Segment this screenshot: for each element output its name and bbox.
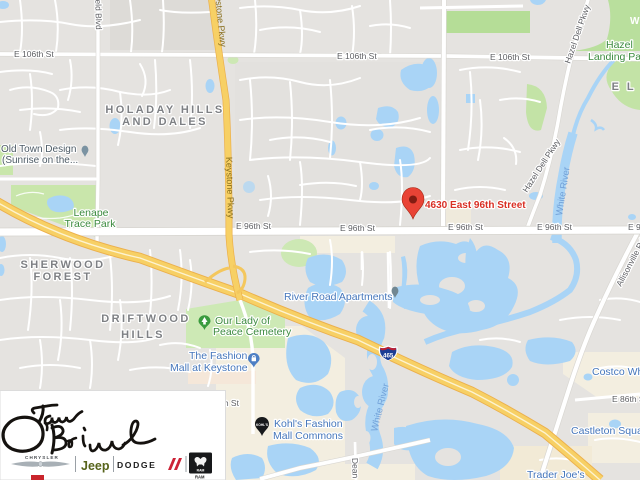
svg-text:(Sunrise on the...: (Sunrise on the... xyxy=(2,155,78,166)
svg-text:Landing Park: Landing Park xyxy=(588,51,640,63)
svg-text:AND DALES: AND DALES xyxy=(122,116,208,128)
svg-text:Costco Wholesale: Costco Wholesale xyxy=(592,366,640,378)
svg-text:465: 465 xyxy=(383,353,394,360)
svg-text:Old Town Design: Old Town Design xyxy=(1,144,76,155)
svg-text:SHERWOOD: SHERWOOD xyxy=(20,259,105,271)
svg-text:Jeep: Jeep xyxy=(81,459,110,473)
svg-text:HOLADAY HILLS: HOLADAY HILLS xyxy=(105,104,224,116)
svg-text:Hazel: Hazel xyxy=(606,39,633,51)
svg-text:E 106th St: E 106th St xyxy=(490,52,530,62)
svg-text:4630 East 96th Street: 4630 East 96th Street xyxy=(425,200,526,211)
svg-text:River Road Apartments: River Road Apartments xyxy=(284,291,393,303)
svg-text:Kohl's Fashion: Kohl's Fashion xyxy=(274,418,343,430)
svg-text:E 106th St: E 106th St xyxy=(14,49,54,59)
svg-text:E 96th St: E 96th St xyxy=(236,221,272,231)
svg-text:KOHL'S: KOHL'S xyxy=(256,423,268,427)
svg-text:E 86th St: E 86th St xyxy=(612,394,640,404)
svg-text:Trace Park: Trace Park xyxy=(65,218,117,230)
svg-text:Mall Commons: Mall Commons xyxy=(273,430,343,442)
svg-text:Trader Joe's: Trader Joe's xyxy=(527,469,585,480)
svg-text:Dean R: Dean R xyxy=(350,458,361,480)
svg-text:RAM: RAM xyxy=(195,475,205,480)
svg-text:E 106th St: E 106th St xyxy=(337,51,377,61)
svg-text:E L L: E L L xyxy=(612,81,640,93)
svg-text:DRIFTWOOD: DRIFTWOOD xyxy=(101,313,190,325)
svg-text:DODGE: DODGE xyxy=(117,460,157,470)
svg-text:E 96th St: E 96th St xyxy=(340,223,376,233)
svg-text:RAM: RAM xyxy=(197,469,205,473)
svg-text:E 96th St: E 96th St xyxy=(537,222,573,232)
svg-text:Westfield Blvd: Westfield Blvd xyxy=(93,0,104,30)
svg-text:E 96th St: E 96th St xyxy=(448,222,484,232)
svg-text:The Fashion: The Fashion xyxy=(189,350,248,362)
svg-text:FOREST: FOREST xyxy=(33,271,92,283)
svg-text:Peace Cemetery: Peace Cemetery xyxy=(213,326,292,338)
svg-text:Mall at Keystone: Mall at Keystone xyxy=(170,362,248,374)
svg-text:Castleton Square: Castleton Square xyxy=(571,425,640,437)
svg-text:HILLS: HILLS xyxy=(121,329,165,341)
svg-text:W: W xyxy=(630,16,640,27)
svg-text:CHRYSLER: CHRYSLER xyxy=(25,455,59,460)
svg-text:E 96th St: E 96th St xyxy=(628,222,640,232)
